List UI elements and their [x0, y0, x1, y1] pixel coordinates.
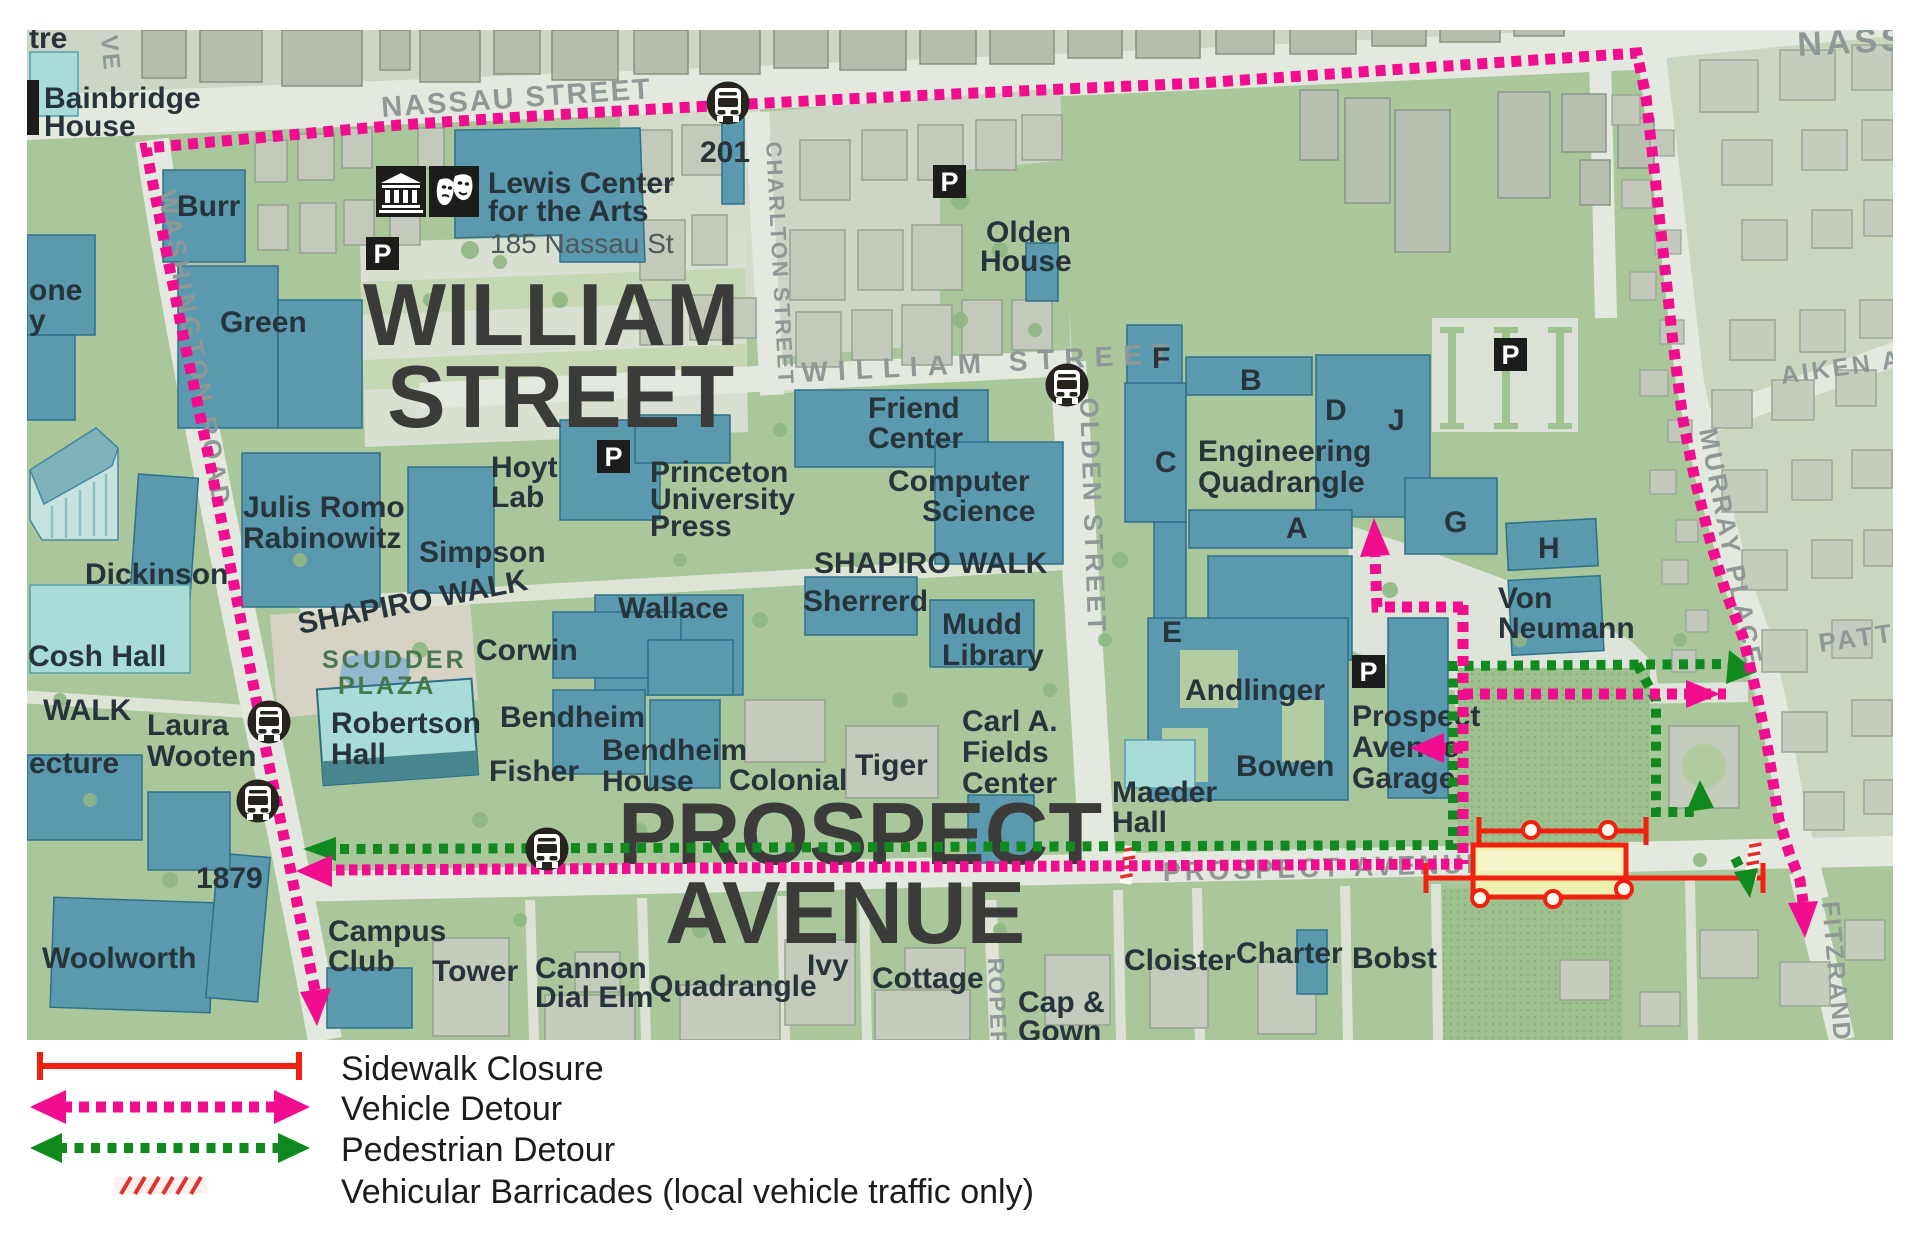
svg-text:Simpson: Simpson — [419, 536, 546, 569]
svg-text:Tiger: Tiger — [855, 749, 928, 782]
svg-text:Maeder: Maeder — [1112, 776, 1217, 809]
svg-text:Robertson: Robertson — [331, 707, 481, 740]
svg-text:WALK: WALK — [43, 694, 132, 727]
svg-text:Library: Library — [942, 639, 1044, 672]
svg-text:Dickinson: Dickinson — [85, 558, 228, 591]
svg-text:F: F — [1152, 342, 1170, 375]
svg-text:Vehicular Barricades (local ve: Vehicular Barricades (local vehicle traf… — [341, 1173, 1034, 1211]
svg-text:Campus: Campus — [328, 915, 446, 948]
svg-text:Woolworth: Woolworth — [42, 942, 196, 975]
svg-text:House: House — [44, 110, 136, 143]
svg-text:Fields: Fields — [962, 736, 1049, 769]
svg-text:AVENUE: AVENUE — [665, 863, 1025, 962]
svg-text:Rabinowitz: Rabinowitz — [243, 522, 401, 555]
svg-text:Hoyt: Hoyt — [491, 451, 558, 484]
svg-text:E: E — [1162, 616, 1182, 649]
svg-text:Wooten: Wooten — [147, 740, 256, 773]
svg-text:Quadrangle: Quadrangle — [1198, 466, 1365, 499]
svg-text:C: C — [1155, 446, 1177, 479]
svg-text:y: y — [29, 304, 46, 337]
svg-text:Green: Green — [220, 306, 307, 339]
svg-text:Club: Club — [328, 945, 395, 978]
svg-text:PLAZA: PLAZA — [338, 672, 436, 700]
svg-text:ROPER: ROPER — [983, 957, 1012, 1050]
svg-text:Bowen: Bowen — [1236, 750, 1334, 783]
svg-text:Vehicle Detour: Vehicle Detour — [341, 1090, 562, 1128]
svg-text:Hall: Hall — [331, 738, 386, 771]
svg-text:Bendheim: Bendheim — [602, 734, 747, 767]
svg-text:Quadrangle: Quadrangle — [650, 970, 817, 1003]
svg-text:Andlinger: Andlinger — [1185, 674, 1325, 707]
svg-text:Cottage: Cottage — [872, 962, 984, 995]
svg-text:P: P — [604, 442, 622, 472]
svg-text:Hall: Hall — [1112, 806, 1167, 839]
svg-text:Garage: Garage — [1352, 762, 1455, 795]
svg-text:Center: Center — [962, 767, 1057, 800]
svg-text:Cosh Hall: Cosh Hall — [28, 640, 166, 673]
svg-text:Ivy: Ivy — [807, 949, 849, 982]
svg-text:SCUDDER: SCUDDER — [322, 646, 467, 674]
svg-text:House: House — [602, 765, 694, 798]
svg-text:Center: Center — [868, 422, 963, 455]
svg-text:one: one — [29, 274, 82, 307]
svg-text:Lab: Lab — [491, 481, 544, 514]
svg-text:Neumann: Neumann — [1498, 612, 1635, 645]
svg-text:Fisher: Fisher — [489, 755, 579, 788]
svg-text:P: P — [1359, 657, 1377, 687]
svg-text:Engineering: Engineering — [1198, 435, 1371, 468]
svg-text:Bendheim: Bendheim — [500, 701, 645, 734]
svg-text:Bobst: Bobst — [1352, 942, 1437, 975]
svg-text:Carl A.: Carl A. — [962, 705, 1058, 738]
svg-text:P: P — [373, 239, 391, 269]
svg-text:185 Nassau St: 185 Nassau St — [490, 228, 674, 259]
svg-text:Computer: Computer — [888, 465, 1030, 498]
svg-text:H: H — [1538, 532, 1560, 565]
svg-text:Tower: Tower — [432, 955, 518, 988]
svg-text:J: J — [1388, 404, 1405, 437]
svg-text:House: House — [980, 245, 1072, 278]
svg-text:D: D — [1325, 394, 1347, 427]
svg-text:Mudd: Mudd — [942, 608, 1022, 641]
svg-text:Laura: Laura — [147, 709, 229, 742]
svg-text:P: P — [1501, 340, 1519, 370]
svg-text:Sidewalk Closure: Sidewalk Closure — [341, 1050, 604, 1088]
svg-text:Burr: Burr — [177, 190, 241, 223]
svg-text:STREET: STREET — [387, 347, 734, 446]
svg-text:Science: Science — [922, 495, 1035, 528]
svg-text:Corwin: Corwin — [476, 634, 578, 667]
svg-text:G: G — [1444, 506, 1467, 539]
svg-text:A: A — [1286, 512, 1308, 545]
svg-text:for the Arts: for the Arts — [488, 195, 649, 228]
svg-text:B: B — [1240, 364, 1262, 397]
svg-text:Charter: Charter — [1236, 937, 1343, 970]
svg-text:Pedestrian Detour: Pedestrian Detour — [341, 1131, 615, 1169]
svg-text:P: P — [940, 167, 958, 197]
svg-text:Sherrerd: Sherrerd — [803, 585, 928, 618]
svg-text:Dial Elm: Dial Elm — [535, 981, 653, 1014]
svg-text:Cloister: Cloister — [1124, 944, 1236, 977]
svg-text:Julis Romo: Julis Romo — [243, 491, 405, 524]
svg-text:Colonial: Colonial — [729, 764, 847, 797]
svg-text:Wallace: Wallace — [618, 592, 729, 625]
svg-text:Press: Press — [650, 510, 732, 543]
svg-text:ecture: ecture — [29, 747, 119, 780]
svg-text:Friend: Friend — [868, 392, 960, 425]
svg-text:VE: VE — [95, 34, 125, 72]
svg-text:SHAPIRO WALK: SHAPIRO WALK — [814, 547, 1048, 580]
svg-text:201: 201 — [700, 136, 750, 169]
svg-text:Von: Von — [1498, 582, 1552, 615]
svg-text:1879: 1879 — [196, 862, 263, 895]
